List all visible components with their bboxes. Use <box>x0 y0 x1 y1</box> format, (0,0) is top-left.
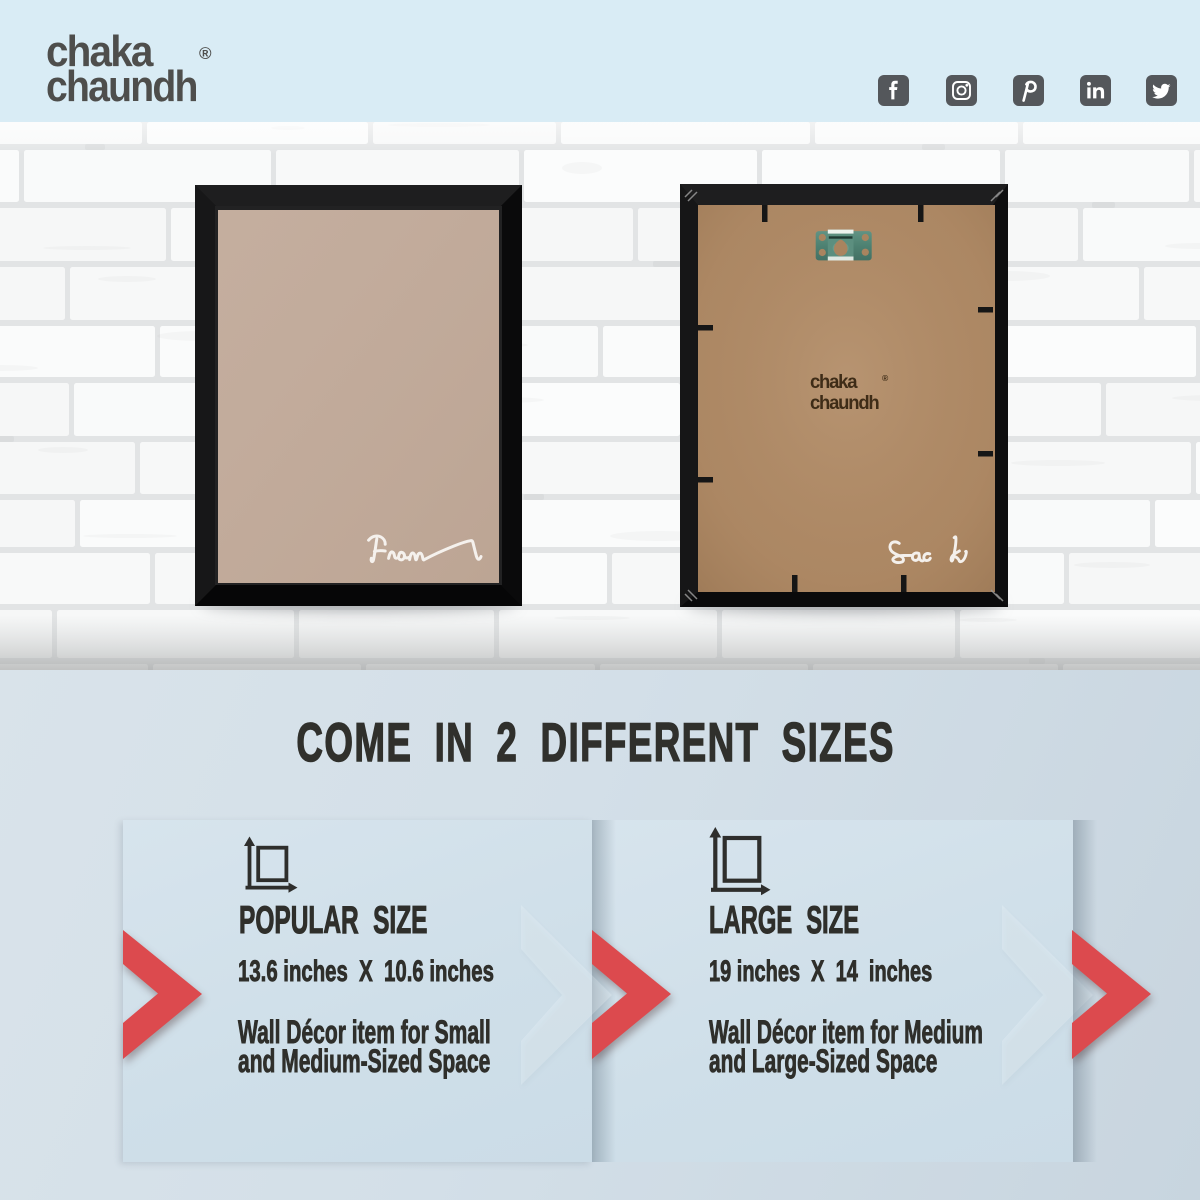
svg-text:®: ® <box>882 373 889 383</box>
svg-text:chaundh: chaundh <box>810 393 879 415</box>
svg-text:chaka: chaka <box>810 372 858 394</box>
